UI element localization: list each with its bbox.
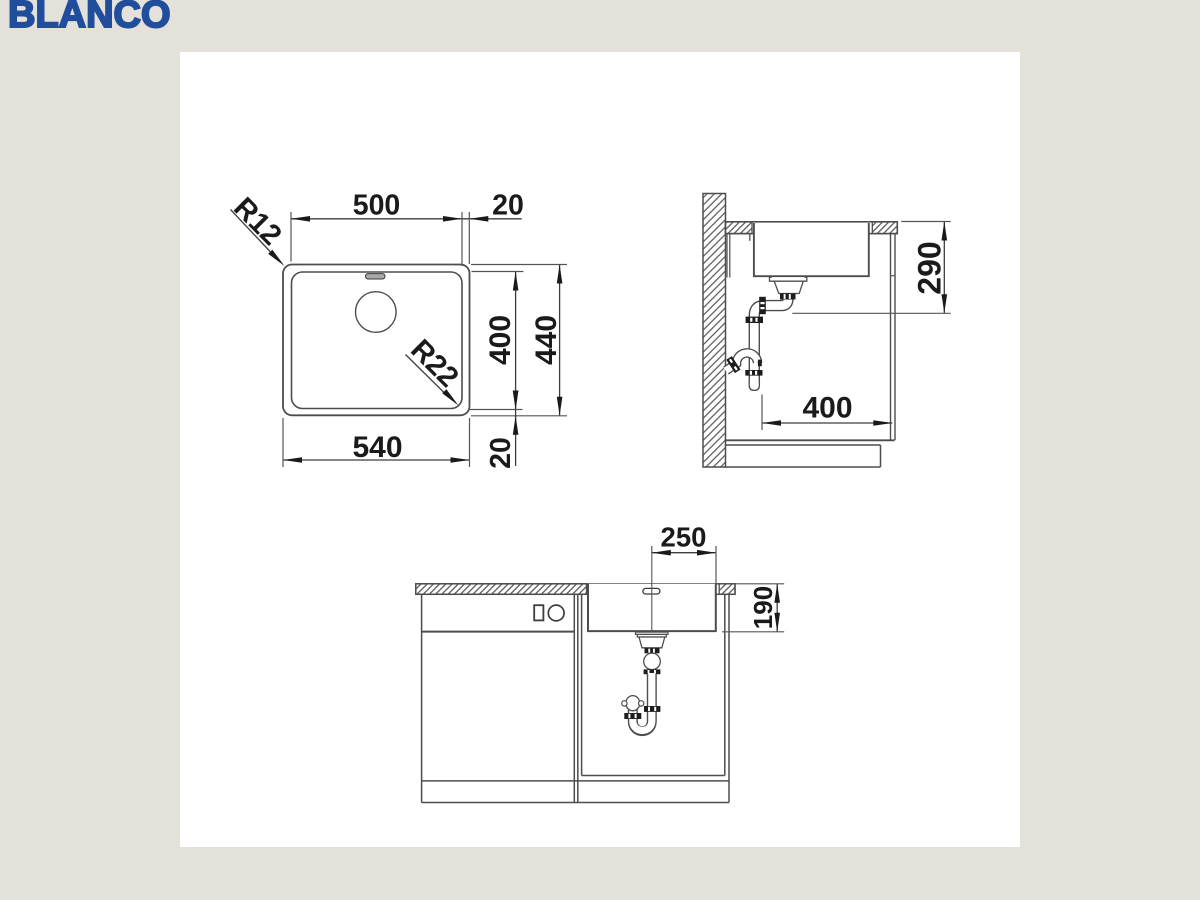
svg-text:190: 190 xyxy=(748,586,778,629)
svg-text:20: 20 xyxy=(485,437,517,469)
svg-text:250: 250 xyxy=(661,522,707,553)
svg-text:R12: R12 xyxy=(227,192,287,252)
svg-text:540: 540 xyxy=(352,431,402,464)
svg-text:500: 500 xyxy=(353,190,401,222)
svg-text:400: 400 xyxy=(802,392,852,425)
svg-text:440: 440 xyxy=(530,315,563,365)
svg-text:20: 20 xyxy=(492,190,524,222)
svg-text:290: 290 xyxy=(912,241,948,294)
svg-text:400: 400 xyxy=(484,315,517,365)
